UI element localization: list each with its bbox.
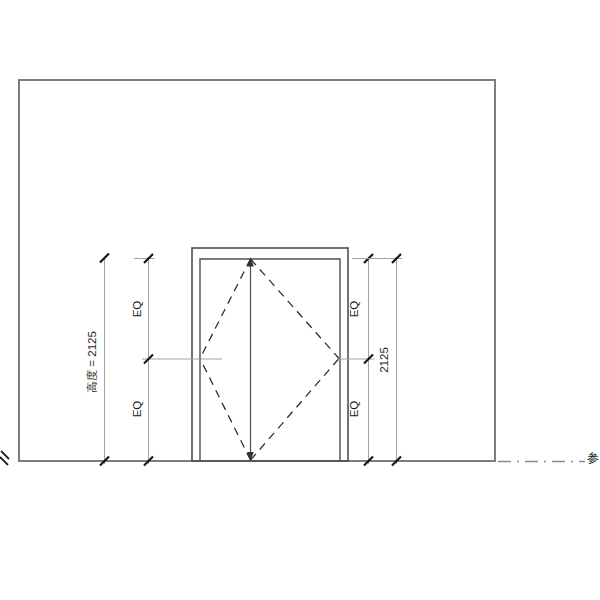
dim-label-right-overall[interactable]: 2125 xyxy=(378,347,390,373)
door-frame-inner[interactable] xyxy=(200,259,340,461)
cad-elevation-canvas: 高度 = 2125 EQ EQ EQ EQ xyxy=(0,0,600,600)
dim-left-eq[interactable]: EQ EQ xyxy=(131,254,223,466)
drawing-linework: 高度 = 2125 EQ EQ EQ EQ xyxy=(0,0,600,600)
level-line[interactable]: 参 xyxy=(0,451,599,465)
door-elevation[interactable] xyxy=(192,248,348,461)
dim-right-overall-height[interactable]: 2125 xyxy=(352,254,402,466)
dim-label-right-eq-upper[interactable]: EQ xyxy=(348,301,360,318)
dim-label-left-overall[interactable]: 高度 = 2125 xyxy=(86,331,98,393)
dim-label-left-eq-upper[interactable]: EQ xyxy=(131,301,143,318)
dim-right-eq[interactable]: EQ EQ xyxy=(338,254,375,466)
level-break-mark-icon xyxy=(0,451,9,465)
dim-label-left-eq-lower[interactable]: EQ xyxy=(131,401,143,418)
dim-label-right-eq-lower[interactable]: EQ xyxy=(348,401,360,418)
level-label[interactable]: 参 xyxy=(587,451,599,465)
wall-outline[interactable] xyxy=(19,80,495,461)
dim-left-overall-height[interactable]: 高度 = 2125 xyxy=(86,254,109,466)
